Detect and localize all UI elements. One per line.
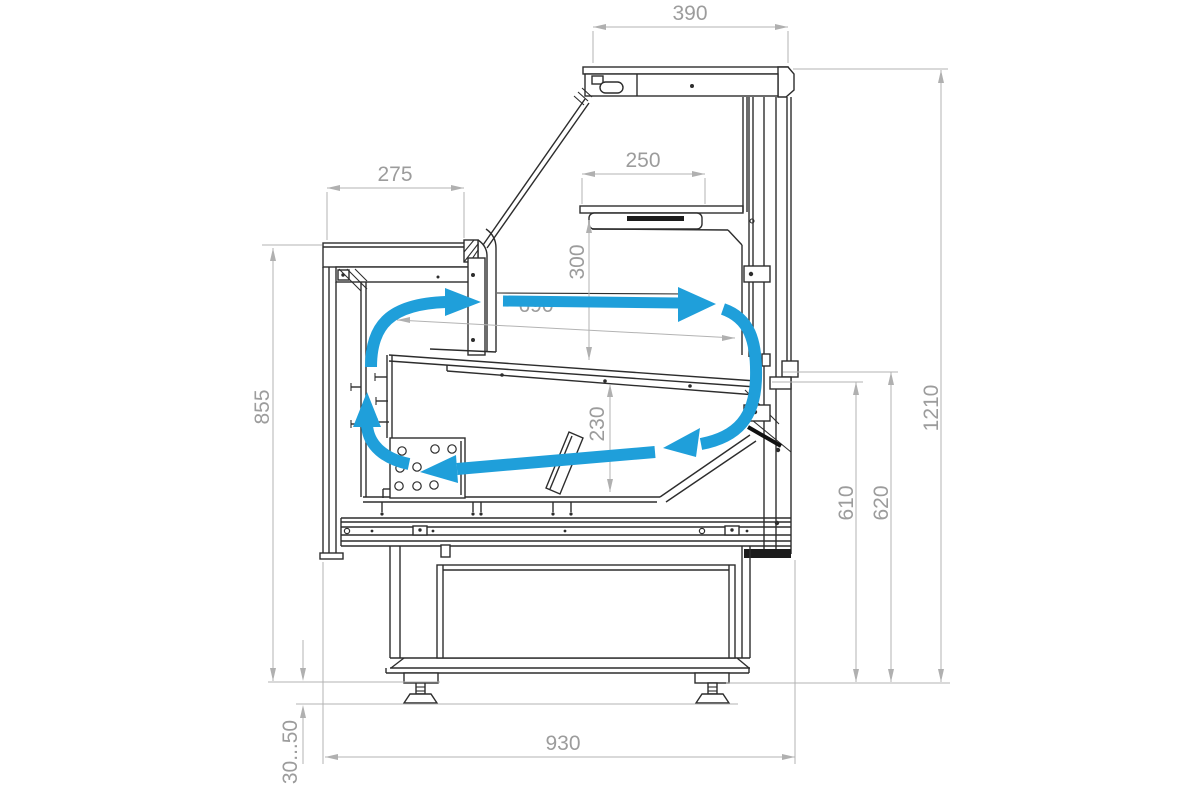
dimension-shelf-depth: 250 — [582, 149, 705, 204]
dimension-label-230: 230 — [586, 406, 609, 441]
dimension-label-610: 610 — [835, 485, 858, 520]
upper-shelf — [580, 206, 754, 355]
dimension-label-930: 930 — [545, 732, 580, 755]
dimension-label-250: 250 — [625, 149, 660, 172]
dimension-shelf-clearance: 300 — [566, 220, 592, 360]
dimension-leg-adjust-range: 30...50 — [268, 640, 738, 784]
technical-drawing-page: 390 275 250 300 690 230 855 — [0, 0, 1200, 800]
dimension-well-depth: 230 — [586, 384, 613, 492]
front-glass — [483, 88, 592, 248]
dimension-counter-depth: 275 — [327, 163, 464, 240]
dimension-canopy-depth: 390 — [593, 2, 788, 63]
airflow-arrow-under-deck-return — [420, 452, 655, 483]
bottom-band — [341, 518, 791, 546]
customer-counter — [323, 240, 478, 291]
dimension-label-275: 275 — [377, 163, 412, 186]
canopy — [583, 67, 794, 97]
dimension-front-edge-height: 610 — [772, 382, 863, 682]
base-frame — [386, 545, 750, 673]
dimension-label-620: 620 — [870, 485, 893, 520]
dimension-rear-ledge-height: 620 — [783, 372, 898, 682]
dimension-label-30-50: 30...50 — [279, 720, 302, 784]
display-deck — [387, 349, 756, 438]
dimension-label-300: 300 — [566, 244, 589, 279]
display-case-drawing: 390 275 250 300 690 230 855 — [0, 0, 1200, 800]
dimension-worktop-height: 855 — [251, 245, 322, 681]
dimension-label-855: 855 — [251, 389, 274, 424]
dimension-label-1210: 1210 — [920, 385, 943, 432]
drain-pins — [380, 502, 572, 516]
adjustable-feet — [404, 673, 729, 703]
dimension-label-390: 390 — [672, 2, 707, 25]
